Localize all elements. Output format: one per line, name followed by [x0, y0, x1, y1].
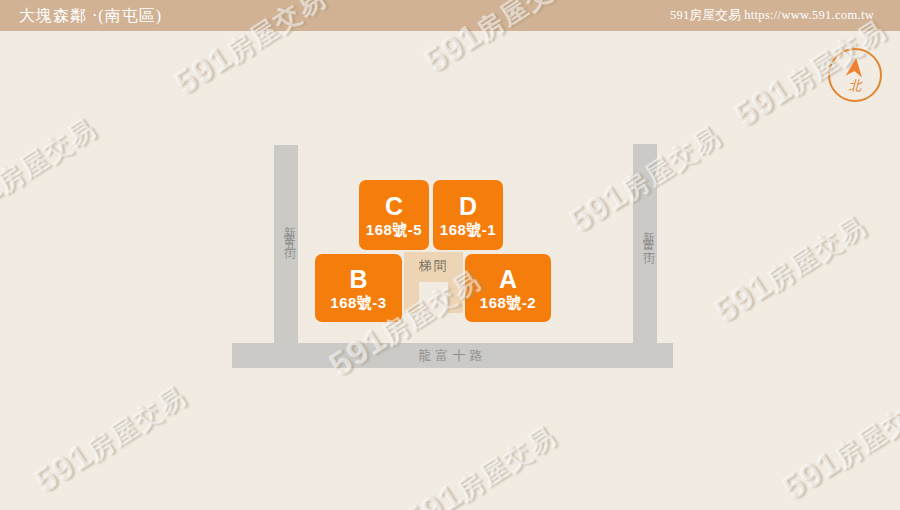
road-label-right: 新富三街	[633, 221, 657, 249]
building-address: 168號-2	[480, 294, 536, 311]
building-b: B 168號-3	[315, 254, 402, 322]
road-longfu-10th-rd: 龍富十路	[232, 343, 673, 368]
road-xinfu-3rd-st	[633, 144, 657, 368]
compass-north-label: 北	[849, 78, 862, 93]
road-label-left: 新富五街	[274, 216, 298, 244]
building-address: 168號-1	[440, 221, 496, 238]
site-credit: 591房屋交易 https://www.591.com.tw	[670, 0, 874, 30]
watermark: 591房屋交易	[0, 106, 103, 233]
site-plan-page: 大塊森鄰 ·(南屯區) 591房屋交易 https://www.591.com.…	[0, 0, 900, 510]
site-brand: 591房屋交易	[670, 8, 741, 22]
building-address: 168號-5	[366, 221, 422, 238]
building-letter: D	[459, 193, 477, 219]
watermark: 591房屋交易	[27, 374, 193, 501]
building-letter: B	[349, 266, 367, 292]
watermark: 591房屋交易	[775, 381, 900, 508]
stairwell-label: 梯間	[404, 257, 463, 275]
road-label-bottom: 龍富十路	[232, 343, 673, 368]
compass: 北	[828, 48, 882, 102]
building-letter: A	[499, 266, 517, 292]
watermark: 591房屋交易	[707, 204, 873, 331]
building-c: C 168號-5	[359, 180, 429, 250]
building-address: 168號-3	[330, 294, 386, 311]
north-arrow-icon	[843, 57, 867, 78]
watermark: 591房屋交易	[397, 414, 563, 510]
building-a: A 168號-2	[465, 254, 551, 322]
site-url: https://www.591.com.tw	[744, 8, 874, 22]
header-bar: 大塊森鄰 ·(南屯區) 591房屋交易 https://www.591.com.…	[0, 0, 900, 31]
page-title: 大塊森鄰 ·(南屯區)	[19, 0, 162, 31]
stairwell-notch	[419, 282, 448, 313]
building-letter: C	[385, 193, 403, 219]
road-xinfu-5th-st	[274, 145, 298, 368]
building-d: D 168號-1	[433, 180, 503, 250]
